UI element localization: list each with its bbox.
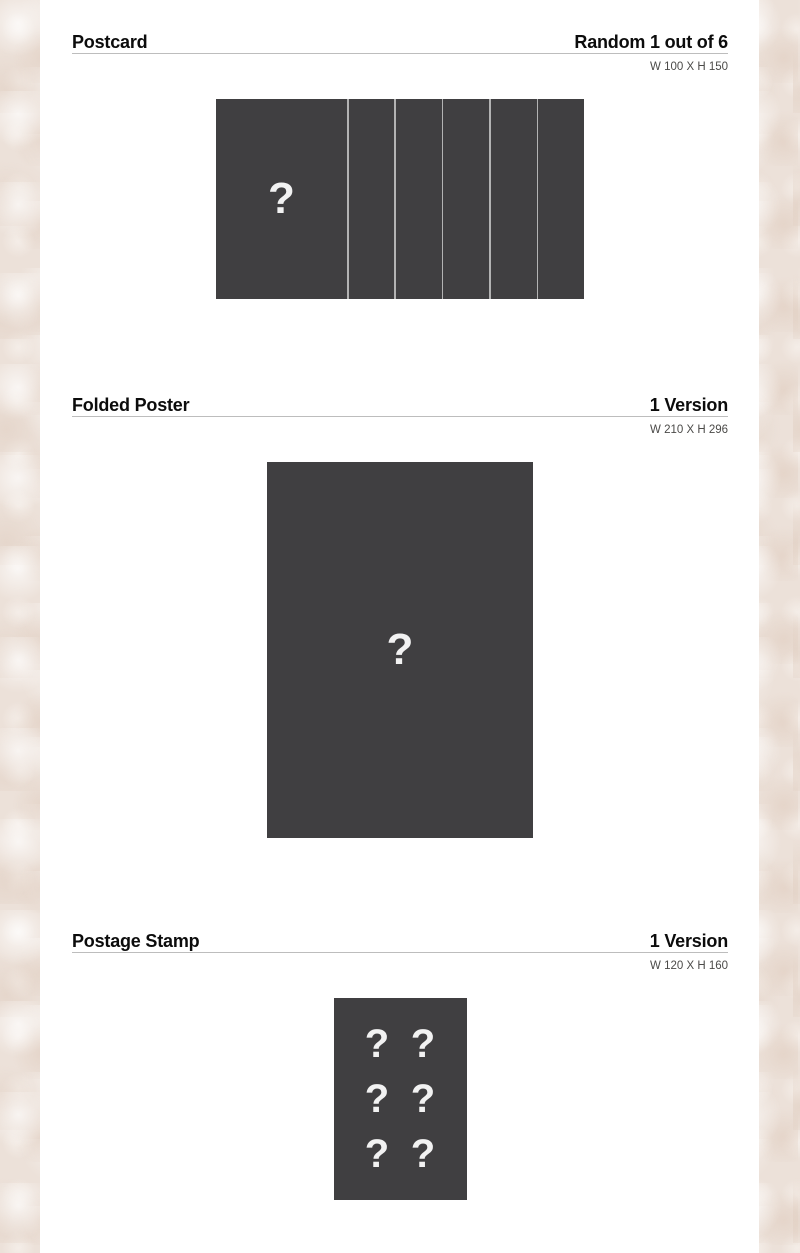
size-spec: W 210 X H 296 — [72, 423, 728, 437]
size-spec: W 100 X H 150 — [72, 60, 728, 74]
question-mark-placeholder: ? — [411, 1079, 435, 1119]
postage-stamp-section-header: Postage Stamp 1 Version — [72, 930, 728, 953]
folded-poster-image: ? — [267, 462, 533, 838]
section-count: Random 1 out of 6 — [574, 31, 728, 53]
question-mark-placeholder: ? — [268, 177, 295, 221]
postcard-front: ? — [216, 99, 347, 299]
postcard-edge — [491, 99, 537, 299]
postage-stamp-image: ? ? ? ? ? ? — [334, 998, 467, 1200]
product-components-page: Postcard Random 1 out of 6 W 100 X H 150… — [0, 0, 800, 1253]
section-count: 1 Version — [650, 394, 728, 416]
section-title: Postage Stamp — [72, 930, 199, 952]
postcard-edge — [538, 99, 584, 299]
stamp-cell: ? — [410, 1138, 436, 1170]
section-postcard: Postcard Random 1 out of 6 W 100 X H 150… — [72, 0, 728, 299]
question-mark-placeholder: ? — [365, 1079, 389, 1119]
stamp-cell: ? — [364, 1083, 390, 1115]
section-count: 1 Version — [650, 930, 728, 952]
question-mark-placeholder: ? — [365, 1024, 389, 1064]
stamp-cell: ? — [410, 1083, 436, 1115]
postcard-edge — [396, 99, 442, 299]
postcard-section-header: Postcard Random 1 out of 6 — [72, 31, 728, 54]
stamp-cell: ? — [364, 1028, 390, 1060]
postcard-edge — [349, 99, 395, 299]
postcard-stack-image: ? — [216, 99, 584, 299]
postcard-edge — [443, 99, 489, 299]
question-mark-placeholder: ? — [411, 1134, 435, 1174]
question-mark-placeholder: ? — [411, 1024, 435, 1064]
stamp-cell: ? — [364, 1138, 390, 1170]
section-folded-poster: Folded Poster 1 Version W 210 X H 296 ? — [72, 394, 728, 838]
question-mark-placeholder: ? — [365, 1134, 389, 1174]
question-mark-placeholder: ? — [387, 628, 414, 672]
section-postage-stamp: Postage Stamp 1 Version W 120 X H 160 ? … — [72, 930, 728, 1200]
size-spec: W 120 X H 160 — [72, 959, 728, 973]
folded-poster-section-header: Folded Poster 1 Version — [72, 394, 728, 417]
section-title: Folded Poster — [72, 394, 189, 416]
stamp-cell: ? — [410, 1028, 436, 1060]
section-title: Postcard — [72, 31, 147, 53]
content-column: Postcard Random 1 out of 6 W 100 X H 150… — [40, 0, 759, 1253]
